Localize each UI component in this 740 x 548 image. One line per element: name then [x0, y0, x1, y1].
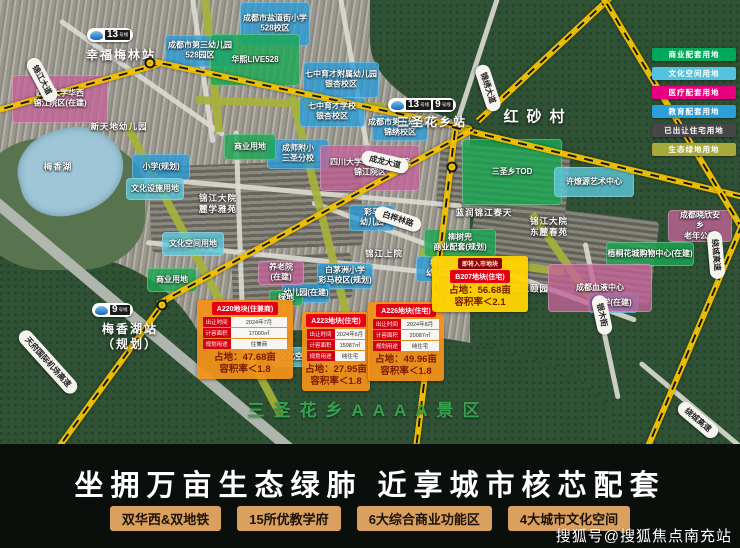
- feature-tag: 6大综合商业功能区: [357, 506, 492, 531]
- station-dot: [449, 164, 456, 171]
- legend-item: 文化空间用地: [652, 67, 736, 80]
- line-suffix: 号线: [119, 33, 128, 38]
- metro-badge: 13号线: [87, 28, 133, 42]
- station-dot: [147, 60, 154, 67]
- headline: 坐拥万亩生态绿肺 近享城市核芯配套: [0, 462, 740, 504]
- line-13-badge: 13号线: [406, 100, 431, 110]
- metro-logo-icon: [90, 31, 103, 40]
- line-suffix: 号线: [420, 103, 429, 108]
- watermark: 搜狐号@搜狐焦点南充站: [556, 525, 732, 546]
- line-number: 13: [408, 100, 419, 110]
- station-name: 三圣花乡站: [397, 115, 467, 130]
- legend-item: 已出让住宅用地: [652, 124, 736, 137]
- station-name: 梅香湖站 （规划）: [102, 322, 158, 352]
- line-number: 13: [107, 30, 118, 40]
- metro-logo-icon: [391, 101, 404, 110]
- legend-item: 医疗配套用地: [652, 86, 736, 99]
- line-13-badge: 13号线: [105, 30, 130, 40]
- legend-item: 生态绿地用地: [652, 143, 736, 156]
- feature-tag: 15所优教学府: [237, 506, 340, 531]
- legend-item: 商业配套用地: [652, 48, 736, 61]
- satellite-map: 成都市盐道街小学 528校区成都市第三幼儿园 528园区七中育才附属幼儿园 银杏…: [0, 0, 740, 444]
- line-9-badge: 9号线: [433, 100, 453, 110]
- line-9-badge: 9号线: [110, 305, 130, 315]
- metro-badge: 13号线9号线: [388, 98, 456, 112]
- line-suffix: 号线: [442, 103, 451, 108]
- station-dot: [159, 302, 166, 309]
- feature-tag: 双华西&双地铁: [110, 506, 221, 531]
- bottom-banner: 坐拥万亩生态绿肺 近享城市核芯配套 双华西&双地铁15所优教学府6大综合商业功能…: [0, 444, 740, 548]
- promo-map-page: 成都市盐道街小学 528校区成都市第三幼儿园 528园区七中育才附属幼儿园 银杏…: [0, 0, 740, 548]
- legend-item: 教育配套用地: [652, 105, 736, 118]
- line-suffix: 号线: [119, 308, 128, 313]
- line-number: 9: [435, 100, 441, 110]
- line-number: 9: [112, 305, 118, 315]
- station-layer: 13号线幸福梅林站13号线9号线三圣花乡站9号线梅香湖站 （规划）: [0, 0, 740, 444]
- metro-logo-icon: [95, 306, 108, 315]
- metro-badge: 9号线: [92, 303, 133, 317]
- station-name: 幸福梅林站: [86, 48, 156, 63]
- legend: 商业配套用地文化空间用地医疗配套用地教育配套用地已出让住宅用地生态绿地用地: [652, 48, 736, 162]
